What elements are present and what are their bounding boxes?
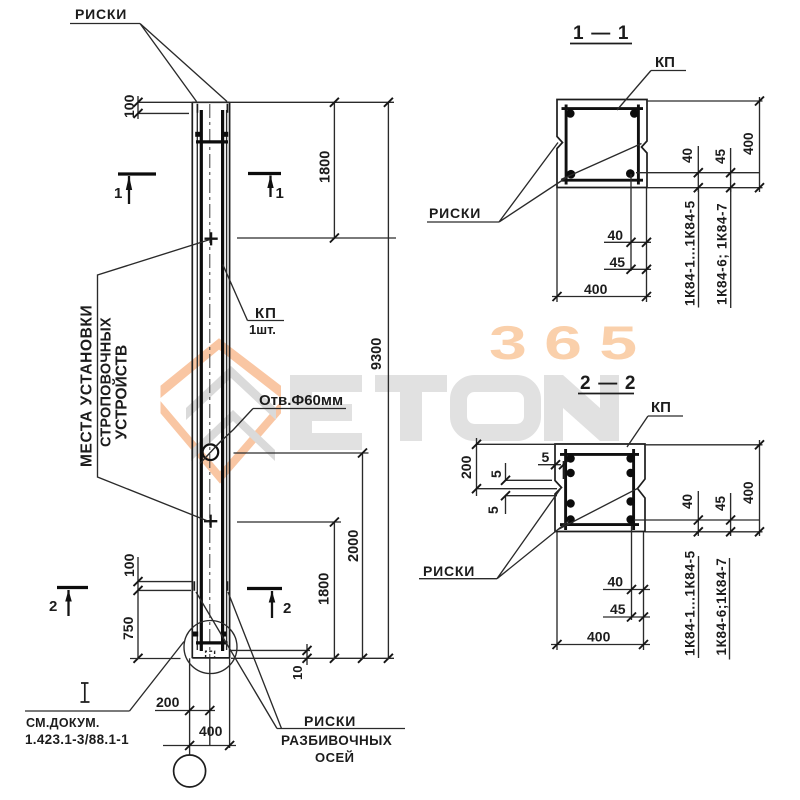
svg-text:9300: 9300 — [369, 338, 385, 370]
svg-text:200: 200 — [156, 694, 180, 710]
svg-text:200: 200 — [458, 455, 474, 479]
svg-text:40: 40 — [608, 227, 624, 243]
svg-text:2000: 2000 — [346, 530, 362, 562]
svg-text:40: 40 — [680, 148, 695, 163]
svg-text:РИСКИ: РИСКИ — [75, 6, 127, 22]
svg-text:400: 400 — [584, 281, 608, 297]
svg-text:РИСКИ: РИСКИ — [429, 205, 481, 221]
svg-text:1: 1 — [276, 185, 284, 202]
svg-text:400: 400 — [741, 481, 756, 504]
svg-text:1шт.: 1шт. — [249, 322, 276, 337]
svg-text:СМ.ДОКУМ.: СМ.ДОКУМ. — [26, 716, 100, 730]
svg-text:400: 400 — [587, 629, 611, 645]
svg-text:2: 2 — [283, 600, 291, 617]
svg-text:1К84-1...1К84-5: 1К84-1...1К84-5 — [683, 200, 698, 306]
svg-text:1800: 1800 — [317, 573, 333, 605]
svg-text:40: 40 — [680, 494, 695, 509]
svg-text:45: 45 — [713, 148, 728, 164]
svg-text:5: 5 — [488, 470, 504, 478]
svg-text:1: 1 — [114, 185, 122, 202]
svg-text:Отв.Ф60мм: Отв.Ф60мм — [259, 392, 343, 409]
svg-text:1800: 1800 — [318, 151, 334, 183]
svg-text:100: 100 — [121, 553, 137, 577]
svg-text:45: 45 — [610, 254, 626, 270]
svg-text:МЕСТА УСТАНОВКИ: МЕСТА УСТАНОВКИ — [79, 305, 96, 467]
svg-text:УСТРОЙСТВ: УСТРОЙСТВ — [113, 345, 131, 440]
svg-text:45: 45 — [713, 495, 728, 511]
svg-text:40: 40 — [608, 574, 624, 590]
svg-text:10: 10 — [290, 666, 305, 680]
svg-text:5: 5 — [485, 506, 501, 514]
svg-text:1 — 1: 1 — 1 — [573, 23, 630, 44]
svg-text:400: 400 — [741, 132, 756, 155]
svg-text:1К84-1...1К84-5: 1К84-1...1К84-5 — [683, 550, 698, 656]
svg-text:КП: КП — [255, 305, 277, 322]
svg-text:365: 365 — [489, 317, 654, 369]
svg-text:РАЗБИВОЧНЫХ: РАЗБИВОЧНЫХ — [281, 733, 392, 748]
svg-text:1.423.1-3/88.1-1: 1.423.1-3/88.1-1 — [25, 732, 129, 747]
svg-text:РИСКИ: РИСКИ — [304, 713, 356, 729]
svg-text:400: 400 — [199, 723, 223, 739]
svg-text:КП: КП — [655, 54, 675, 71]
svg-text:1К84-6;1К84-7: 1К84-6;1К84-7 — [714, 558, 729, 656]
svg-text:СТРОПОВОЧНЫХ: СТРОПОВОЧНЫХ — [99, 317, 115, 447]
svg-text:РИСКИ: РИСКИ — [423, 563, 475, 579]
svg-text:100: 100 — [121, 94, 137, 118]
svg-text:5: 5 — [542, 449, 550, 465]
svg-text:1К84-6; 1К84-7: 1К84-6; 1К84-7 — [715, 203, 730, 305]
svg-text:750: 750 — [120, 616, 136, 640]
svg-text:2 — 2: 2 — 2 — [580, 373, 637, 394]
svg-text:45: 45 — [610, 601, 626, 617]
svg-text:КП: КП — [651, 399, 671, 416]
svg-text:2: 2 — [49, 598, 57, 615]
svg-text:ОСЕЙ: ОСЕЙ — [315, 750, 355, 765]
